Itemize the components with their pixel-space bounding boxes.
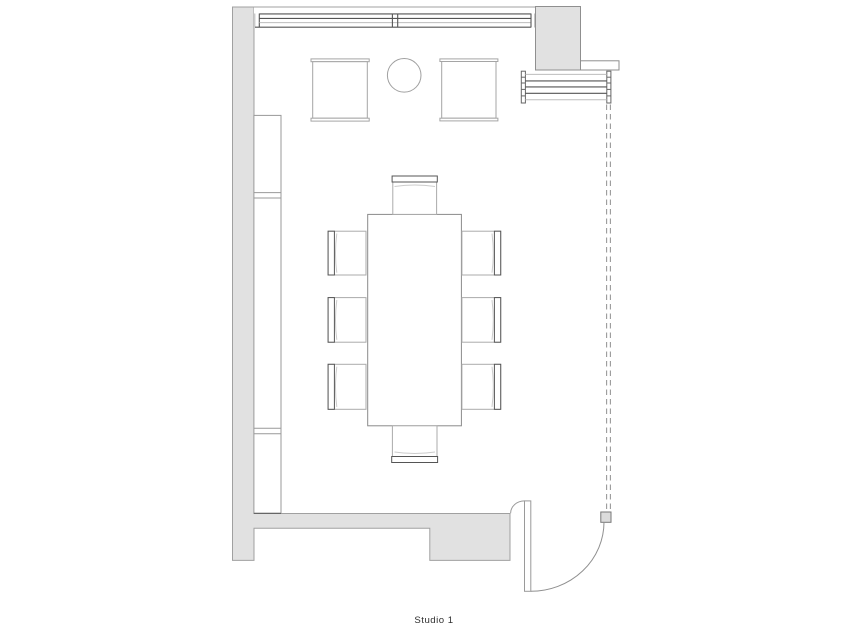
svg-text:Studio 1: Studio 1: [414, 615, 453, 626]
